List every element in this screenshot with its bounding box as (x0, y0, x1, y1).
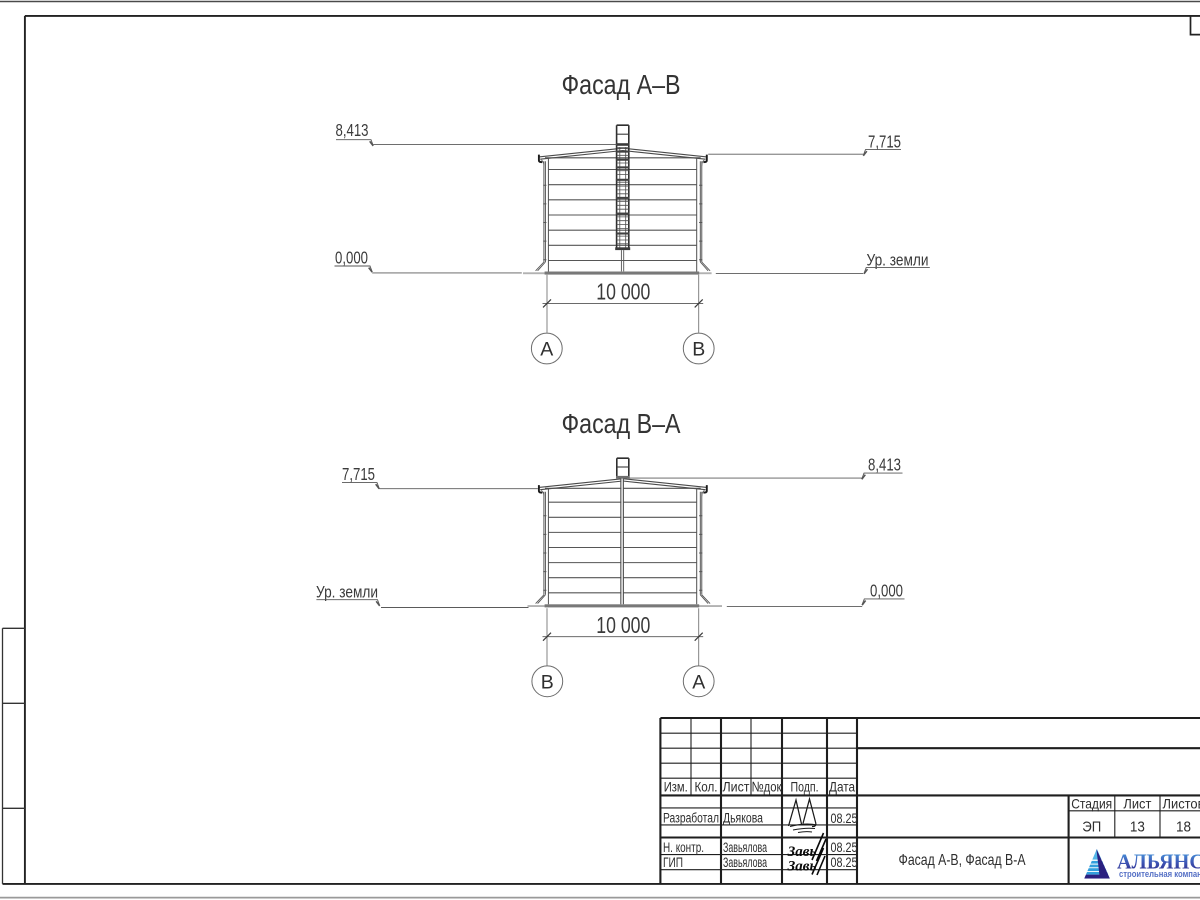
svg-text:8,413: 8,413 (336, 120, 369, 140)
svg-text:Ур. земли: Ур. земли (316, 584, 378, 602)
svg-text:Фасад В–А: Фасад В–А (562, 408, 681, 439)
svg-text:7,715: 7,715 (342, 464, 375, 484)
svg-text:13: 13 (1130, 819, 1145, 836)
svg-text:10 000: 10 000 (596, 612, 650, 638)
svg-text:строительная компания: строительная компания (1119, 869, 1200, 879)
svg-text:Н. контр.: Н. контр. (663, 840, 704, 855)
svg-text:Листов: Листов (1163, 795, 1200, 811)
svg-text:В: В (541, 671, 554, 693)
svg-text:0,000: 0,000 (870, 581, 903, 601)
svg-text:8,413: 8,413 (868, 455, 901, 475)
svg-text:Ур. земли: Ур. земли (867, 252, 929, 270)
svg-text:Лист: Лист (723, 779, 750, 795)
svg-text:08.25: 08.25 (831, 855, 858, 870)
svg-text:Стадия: Стадия (1071, 795, 1112, 811)
svg-text:Дата: Дата (829, 779, 855, 795)
svg-text:Подп.: Подп. (791, 779, 819, 795)
svg-text:Завьялова: Завьялова (723, 840, 767, 855)
svg-text:10 000: 10 000 (596, 279, 650, 305)
svg-text:А: А (692, 671, 705, 693)
svg-text:Кол.: Кол. (695, 779, 718, 795)
svg-text:0,000: 0,000 (335, 248, 368, 268)
svg-text:ЭП: ЭП (1082, 819, 1101, 836)
svg-text:Разработал: Разработал (663, 811, 719, 826)
svg-text:Фасад А-В, Фасад В-А: Фасад А-В, Фасад В-А (899, 852, 1026, 869)
svg-text:18: 18 (1176, 819, 1191, 836)
svg-text:Изм.: Изм. (664, 779, 688, 795)
svg-text:Лист: Лист (1123, 795, 1152, 811)
svg-text:Завьялова: Завьялова (723, 855, 767, 870)
svg-text:7,715: 7,715 (868, 131, 901, 151)
svg-text:№док: №док (752, 779, 783, 795)
svg-text:ГИП: ГИП (663, 855, 683, 870)
svg-text:В: В (692, 339, 705, 361)
svg-text:Завь: Завь (787, 859, 817, 875)
svg-text:А: А (540, 339, 553, 361)
svg-text:Фасад А–В: Фасад А–В (562, 69, 681, 100)
svg-text:Дьякова: Дьякова (723, 811, 763, 826)
svg-text:08.25: 08.25 (831, 840, 858, 855)
svg-text:08.25: 08.25 (831, 811, 858, 826)
